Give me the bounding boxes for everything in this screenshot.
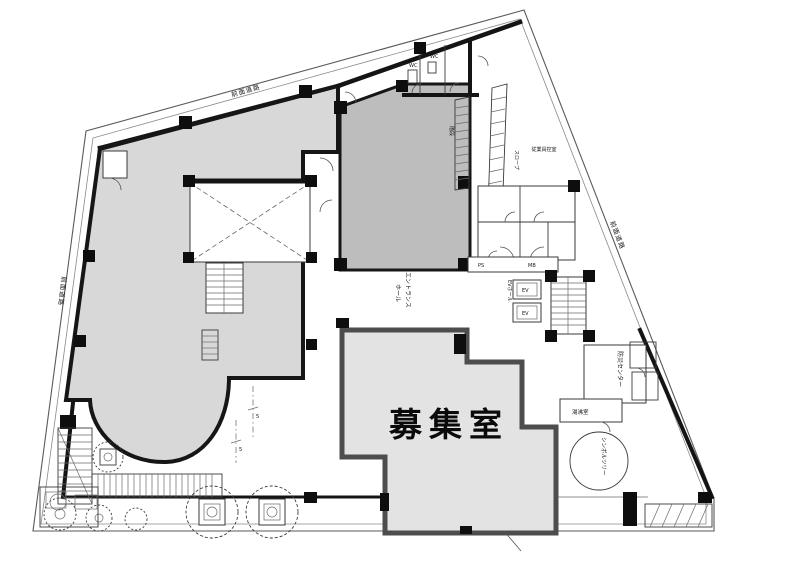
mb-label: MB [528,263,536,269]
wc-a-label: WC [409,63,418,69]
floor-plan: WC WC 階段 スロープ [0,0,787,569]
vacant-room-label: 募集室 [388,405,509,444]
stair-main-core [545,270,595,342]
center-tenant-area [334,80,471,271]
disaster-center-label: 防災センター [616,351,624,387]
marker-label-1: 5 [256,414,259,420]
lowerright-rooms: 防災センター 湯沸室 [560,342,658,432]
bench [92,474,222,497]
ramp-hatch [645,504,712,527]
marker-label-2: 5 [239,447,242,453]
elevators: EV EV EVホール [506,280,541,322]
ps-mb-strip: PS MB [468,257,558,272]
midright-rooms: 従業員控室 [478,146,580,260]
dimension-markers: 5 5 [231,386,259,463]
stair-label: 階段 [448,126,455,136]
left-tenant-area [66,86,338,462]
ev-hall-label: EVホール [506,280,512,302]
ev-label-2: EV [522,311,529,317]
vestibule [103,151,127,178]
floor-plan-canvas: WC WC 階段 スロープ [0,0,787,569]
street-label-left: 前面道路 [56,276,69,307]
symbol-tree-label: シンボルツリー [600,437,608,476]
ps-label: PS [478,263,484,269]
entrance-hall-label-1: エントランス [404,272,411,308]
entrance-hall-label-2: ホール [394,284,401,302]
ramp-label: スロープ [513,150,519,170]
vacant-room: 募集室 [336,318,556,551]
staff-room-label: 従業員控室 [531,146,556,153]
ev-label-1: EV [522,288,529,294]
wc-b-label: WC [430,54,439,60]
escalator-void [183,175,317,263]
kitchenette-label: 湯沸室 [572,408,589,416]
symbol-tree: シンボルツリー [570,432,628,490]
street-label-top: 前面道路 [230,82,261,99]
